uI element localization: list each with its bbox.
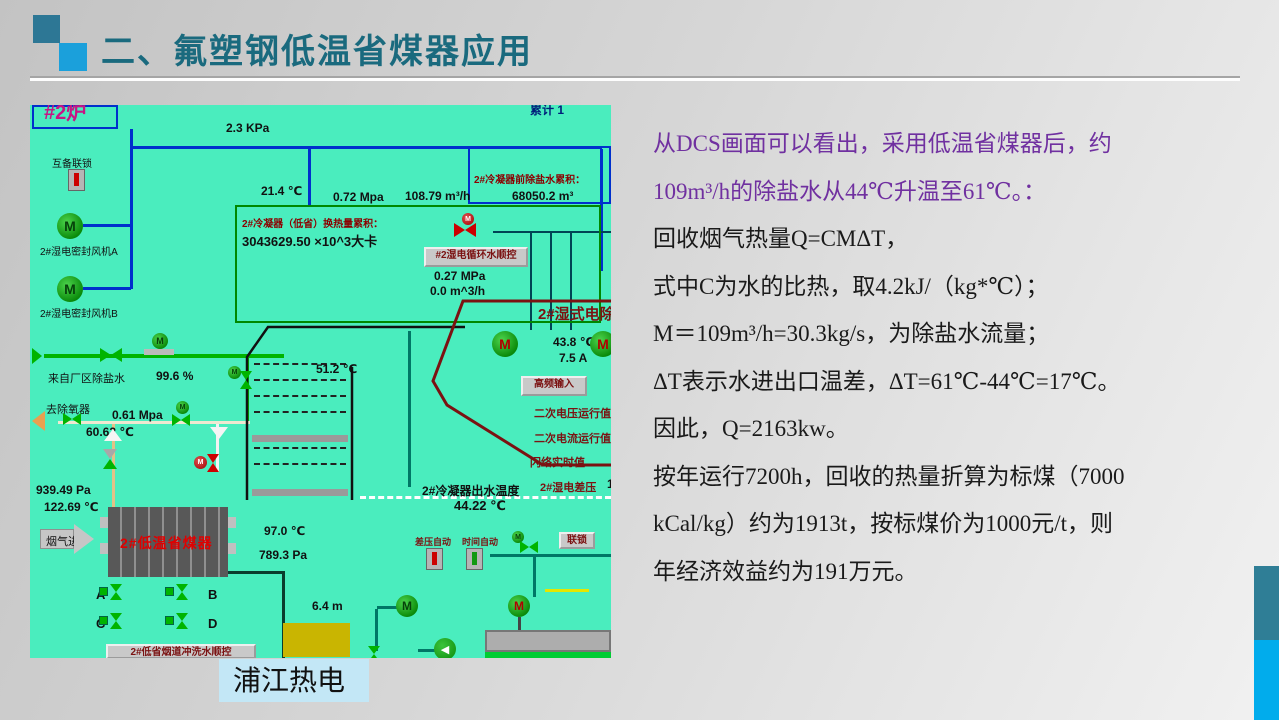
teal-pipe-v3: [375, 609, 378, 651]
logo-square-dark: [33, 15, 60, 43]
pressure-939-49: 939.49 Pa: [36, 483, 91, 497]
condenser-outlet-temp-label: 2#冷凝器出水温度: [422, 482, 519, 499]
body-line-4: 式中C为水的比热，取4.2kJ/（kg*℃）；: [653, 263, 1253, 311]
pump-motor: M: [396, 595, 418, 617]
body-line-8: 按年运行7200h，回收的热量折算为标煤（7000: [653, 453, 1253, 501]
pressure-0-27: 0.27 MPa: [434, 269, 485, 283]
accent-bar-blue: [1254, 640, 1279, 720]
slide-title: 二、氟塑钢低温省煤器应用: [101, 24, 533, 73]
concrete-base: [485, 630, 611, 652]
agitator-motor: M: [508, 595, 530, 617]
temp-21-4: 21.4 ℃: [261, 184, 302, 198]
temp-122-69: 122.69 ℃: [44, 500, 99, 514]
hf-input-button[interactable]: 高频输入: [521, 376, 587, 396]
secondary-current-label: 二次电流运行值: [534, 430, 611, 446]
body-line-1: 从DCS画面可以看出，采用低温省煤器后，约: [653, 120, 1253, 168]
blue-pipe-v1: [130, 129, 133, 289]
fan-a-label: 2#湿电密封风机A: [40, 243, 118, 258]
water-tank: [283, 623, 350, 657]
clipped-top-label: 累计 1: [530, 105, 564, 118]
drain-down-arrow: [210, 427, 228, 439]
caption-box: 浦江热电: [219, 659, 369, 702]
flashover-label: 闪络实时值: [530, 454, 585, 470]
valve-d: [176, 613, 188, 629]
furnace-2-label: #2炉: [44, 105, 86, 125]
dp-auto-label: 差压自动: [415, 535, 451, 548]
esp-spray-valve: [454, 223, 476, 237]
demin-from-plant-label: 来自厂区除盐水: [48, 370, 125, 386]
esp-motor: M: [492, 331, 518, 357]
fan-b-motor: M: [57, 276, 83, 302]
teal-pipe-v2: [533, 557, 536, 597]
valve-open-99-6: 99.6 %: [156, 369, 193, 383]
flue-arrow-head: [74, 524, 94, 554]
valve-d-label: D: [208, 616, 217, 631]
pressure-0-72: 0.72 Mpa: [333, 190, 384, 204]
accent-bar-teal: [1254, 566, 1279, 640]
body-line-7: 因此，Q=2163kw。: [653, 405, 1253, 453]
economizer-label: 2#低温省煤器: [120, 533, 213, 553]
pressure-0-61: 0.61 Mpa: [112, 408, 163, 422]
logo-square-light: [59, 43, 87, 71]
vol-68050: 68050.2 m³: [512, 189, 573, 203]
valve-c: [110, 613, 122, 629]
esp-motor-right: M: [590, 331, 611, 357]
drain-valve-motor: M: [194, 456, 207, 469]
flow-direction-icon: ◀: [434, 638, 456, 658]
level-6-4: 6.4 m: [312, 599, 343, 613]
drain-valve: [207, 454, 220, 472]
fan-a-stub: [83, 224, 131, 227]
body-text: 从DCS画面可以看出，采用低温省煤器后，约109m³/h的除盐水从44℃升温至6…: [653, 120, 1253, 595]
esp-dp-label: 2#湿电差压: [540, 479, 596, 495]
riser-up-arrow: [104, 429, 122, 441]
interlock-label: 互备联锁: [52, 155, 92, 170]
flush-seq-button[interactable]: 2#低省烟道冲洗水顺控: [106, 644, 256, 658]
esp-dp-value: 1: [607, 477, 611, 491]
pressure-789-3: 789.3 Pa: [259, 548, 307, 562]
valve-b: [176, 584, 188, 600]
yellow-dash: [545, 589, 589, 592]
wet-esp-title: 2#湿式电除尘: [538, 303, 611, 324]
temp-51-2: 51.2 ℃: [316, 362, 357, 376]
economizer-tab-4: [228, 543, 236, 554]
secondary-voltage-label: 二次电压运行值: [534, 405, 611, 421]
blue-pipe-v2: [308, 149, 311, 207]
valve-motor-1: M: [152, 333, 168, 349]
slide: 二、氟塑钢低温省煤器应用 ◀ #2炉累计 12.3 KPa互备联锁2: [0, 0, 1279, 720]
economizer-tab-1: [100, 517, 108, 528]
circ-water-seq-button[interactable]: #2湿电循环水顺控: [424, 247, 528, 267]
temp-43-8: 43.8 ℃: [553, 335, 594, 349]
demin-in-arrow: [32, 348, 42, 364]
flow-0-0: 0.0 m^3/h: [430, 284, 485, 298]
body-line-3: 回收烟气热量Q=CMΔT，: [653, 215, 1253, 263]
flow-108-79: 108.79 m³/h: [405, 189, 470, 203]
time-auto-toggle-icon[interactable]: [466, 548, 483, 570]
ground-strip: [485, 652, 611, 658]
valve-b-label: B: [208, 587, 217, 602]
fan-b-label: 2#湿电密封风机B: [40, 305, 118, 320]
branch-valve: [240, 371, 253, 389]
current-7-5: 7.5 A: [559, 351, 587, 365]
interlock-toggle-icon[interactable]: [68, 169, 85, 191]
economizer-tab-3: [228, 517, 236, 528]
demin-inlet-valve: [100, 348, 122, 362]
time-auto-label: 时间自动: [462, 535, 498, 548]
economizer-tab-2: [100, 543, 108, 554]
interlock-valve: [520, 541, 538, 553]
heat-accum-label: 2#冷凝器（低省）换热量累积：: [242, 215, 383, 230]
p061-valve: [172, 414, 190, 426]
pre-demin-accum-label: 2#冷凝器前除盐水累积：: [474, 171, 585, 186]
body-line-6: ΔT表示水进出口温差，ΔT=61℃-44℃=17℃。: [653, 358, 1253, 406]
dp-auto-toggle-icon[interactable]: [426, 548, 443, 570]
fan-a-motor: M: [57, 213, 83, 239]
pressure-2-3kpa: 2.3 KPa: [226, 121, 269, 135]
fan-b-stub: [83, 287, 131, 290]
body-line-9: kCal/kg）约为1913t，按标煤价为1000元/t，则: [653, 500, 1253, 548]
body-line-5: M＝109m³/h=30.3kg/s，为除盐水流量；: [653, 310, 1253, 358]
deaerator-arrow: [32, 411, 45, 431]
valve-motor-3: M: [176, 401, 189, 414]
tank-top-line: [228, 571, 285, 574]
deaerator-valve: [63, 413, 81, 425]
teal-pipe-h2: [490, 554, 611, 557]
heat-accum-value: 3043629.50 ×10^3大卡: [242, 231, 377, 250]
temp-44-22: 44.22 ℃: [454, 498, 506, 514]
dcs-screenshot: ◀ #2炉累计 12.3 KPa互备联锁2#湿电密封风机A2#湿电密封风机B21…: [30, 105, 611, 658]
temp-97-0: 97.0 ℃: [264, 524, 305, 538]
valve-a: [110, 584, 122, 600]
body-line-10: 年经济效益约为191万元。: [653, 548, 1253, 596]
body-line-2: 109m³/h的除盐水从44℃升温至61℃。：: [653, 168, 1253, 216]
riser-valve: [103, 449, 117, 469]
valve-motor-base: [144, 349, 174, 355]
header-divider-highlight: [30, 78, 1240, 81]
tank-valve: [368, 646, 381, 658]
interlock-button[interactable]: 联锁: [559, 532, 595, 549]
